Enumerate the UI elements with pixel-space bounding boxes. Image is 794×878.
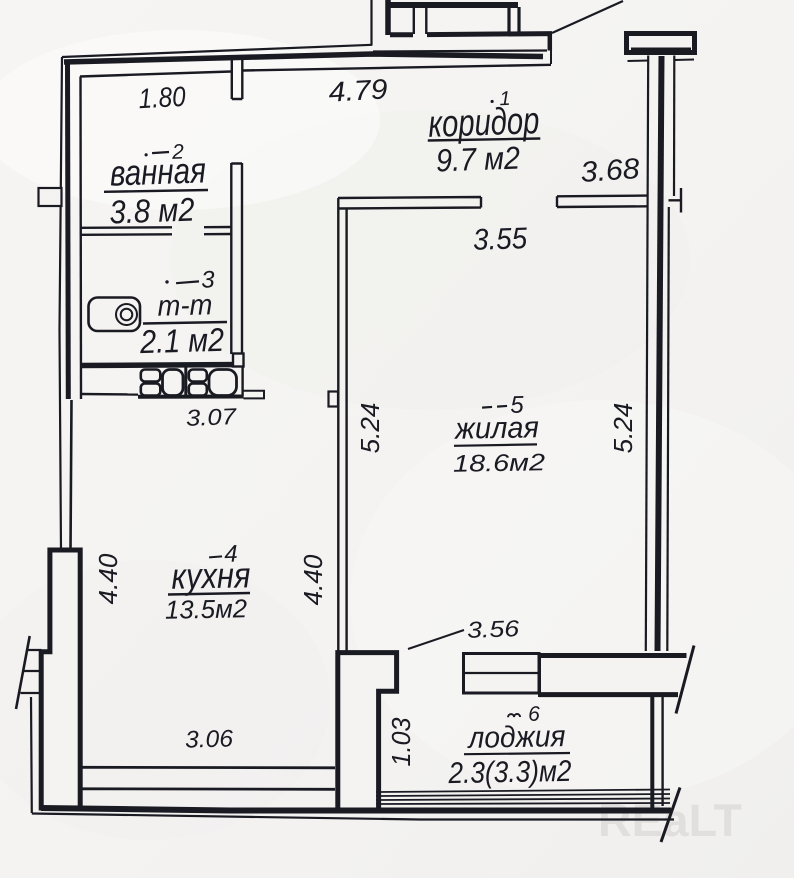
svg-text:3.06: 3.06	[185, 725, 234, 753]
svg-text:4.40: 4.40	[298, 554, 328, 605]
svg-text:9.7 м2: 9.7 м2	[435, 140, 520, 179]
svg-text:13.5м2: 13.5м2	[165, 593, 248, 624]
svg-text:ванная: ванная	[109, 149, 206, 193]
svg-text:5.24: 5.24	[355, 403, 385, 454]
svg-text:4.79: 4.79	[328, 73, 389, 108]
svg-text:лоджия: лоджия	[466, 720, 565, 755]
svg-text:жилая: жилая	[453, 411, 539, 445]
svg-text:1.03: 1.03	[386, 717, 416, 767]
svg-text:3.55: 3.55	[473, 222, 528, 257]
svg-text:т-т: т-т	[157, 289, 213, 322]
svg-text:5.24: 5.24	[608, 403, 638, 454]
svg-text:1.80: 1.80	[138, 81, 187, 114]
svg-text:4.40: 4.40	[93, 553, 123, 604]
svg-text:3.07: 3.07	[186, 403, 238, 431]
svg-text:2.1 м2: 2.1 м2	[139, 321, 225, 360]
svg-text:18.6м2: 18.6м2	[453, 449, 545, 478]
svg-text:3.56: 3.56	[467, 615, 520, 643]
svg-text:кухня: кухня	[171, 554, 251, 596]
svg-text:3.68: 3.68	[580, 153, 641, 189]
svg-text:3.8 м2: 3.8 м2	[109, 191, 195, 231]
svg-text:2.3(3.3)м2: 2.3(3.3)м2	[447, 755, 572, 790]
